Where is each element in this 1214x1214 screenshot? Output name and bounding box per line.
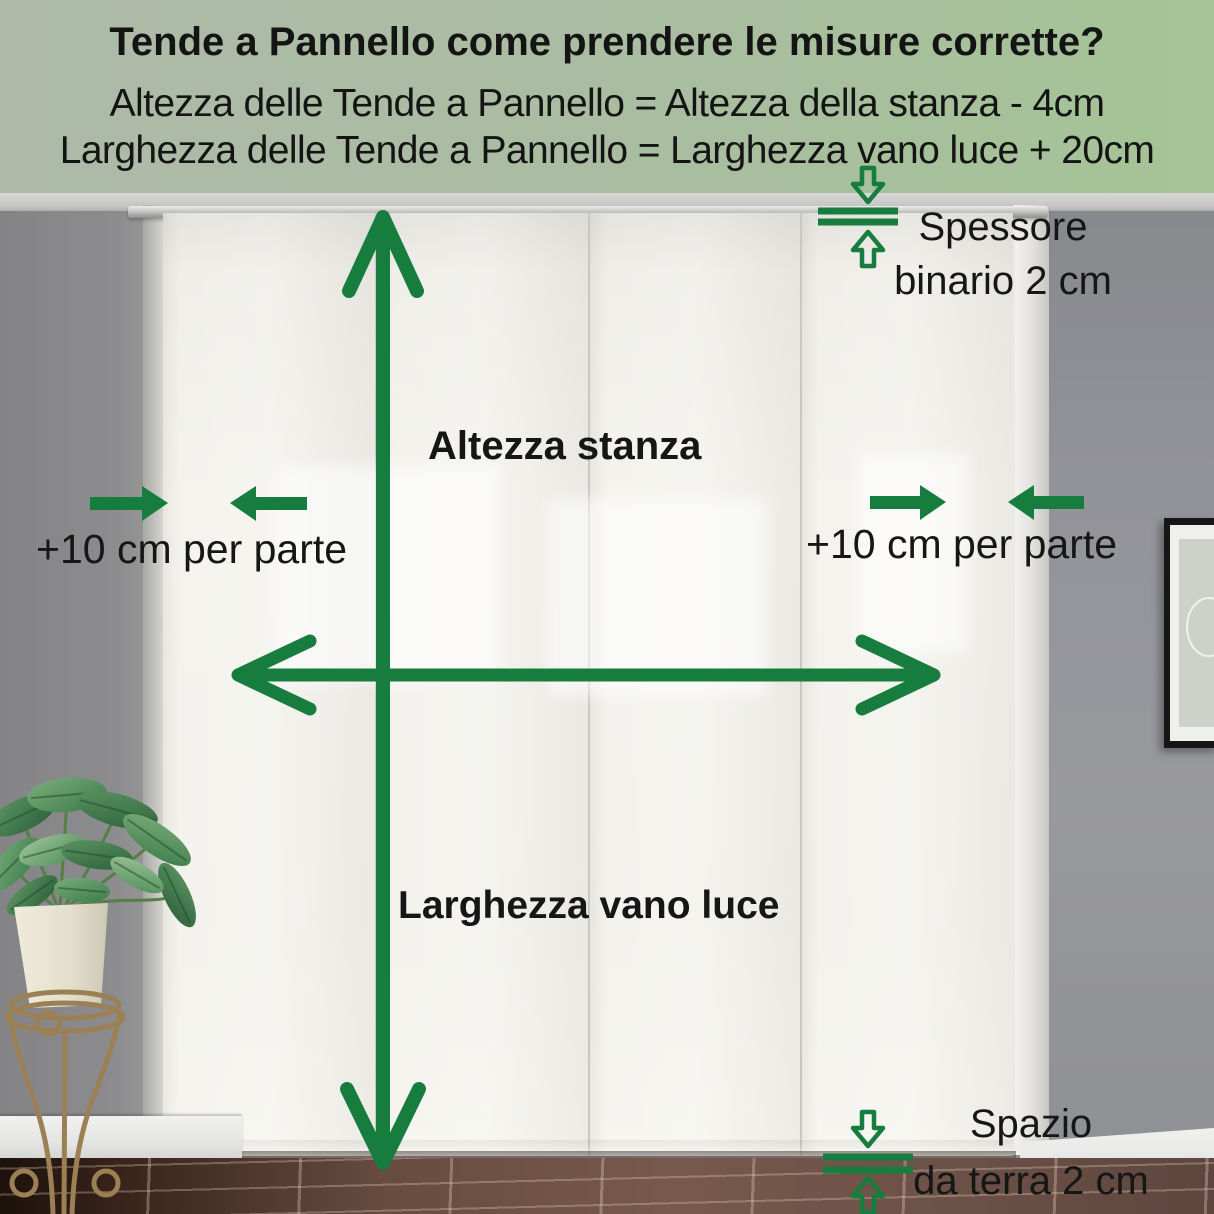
height-formula: Altezza delle Tende a Pannello = Altezza… [0,80,1214,127]
room-height-label: Altezza stanza [428,424,701,469]
left-extension-label: +10 cm per parte [36,526,347,573]
track-thickness-line2: binario 2 cm [873,254,1133,308]
potted-plant [0,755,222,1214]
page-title: Tende a Pannello come prendere le misure… [0,0,1214,65]
picture-frame-art [1179,539,1214,727]
floor-gap-line2: da terra 2 cm [901,1153,1161,1210]
track-thickness-label: Spessore binario 2 cm [873,200,1133,308]
plant-stand [7,992,123,1214]
width-formula: Larghezza delle Tende a Pannello = Largh… [0,127,1214,174]
floor-gap-line1: Spazio [901,1096,1161,1153]
right-extension-label: +10 cm per parte [806,521,1117,568]
picture-frame [1164,518,1214,748]
window-width-label: Larghezza vano luce [398,884,778,928]
picture-frame-mat [1170,525,1214,741]
curtain-measurement-infographic: Tende a Pannello come prendere le misure… [0,0,1214,1214]
floor-gap-label: Spazio da terra 2 cm [901,1096,1161,1210]
panel-curtains [163,213,1013,1156]
room-photo [0,193,1214,1214]
curtain-panel-4 [800,213,1015,1156]
window-light-patch [275,465,500,683]
header: Tende a Pannello come prendere le misure… [0,0,1214,193]
window-recess-right [1013,205,1049,1155]
picture-frame-circle-motif [1186,597,1214,657]
track-thickness-line1: Spessore [873,200,1133,254]
window-light-patch [547,498,767,696]
